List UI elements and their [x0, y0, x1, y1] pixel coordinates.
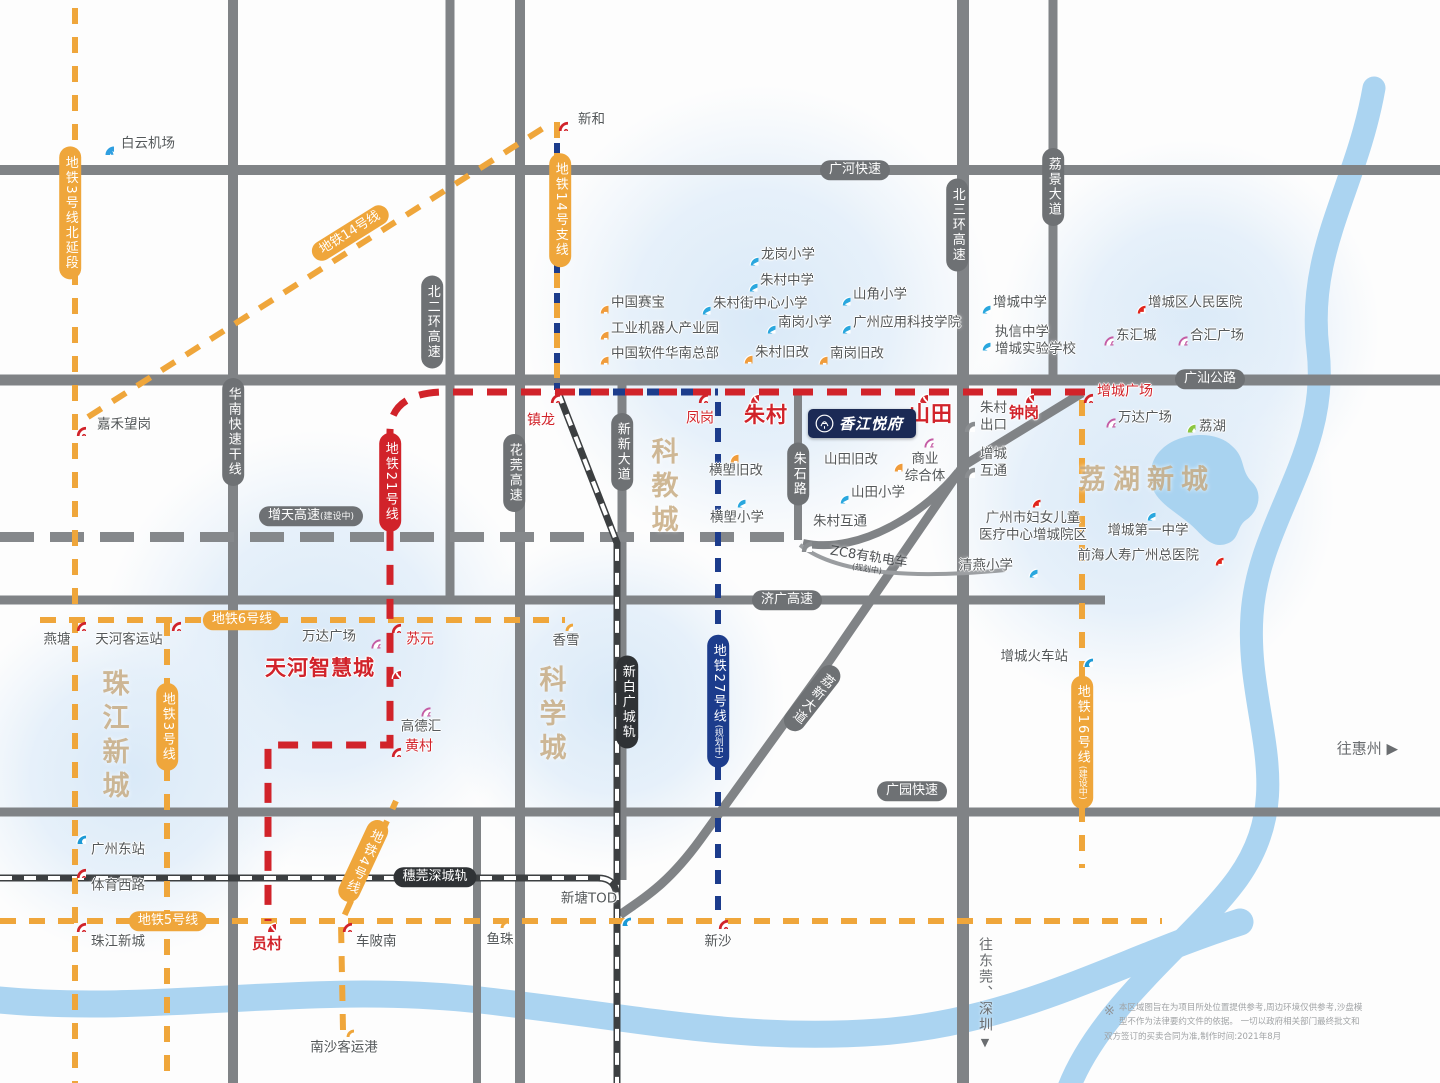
station-label: 增城广场 — [1097, 383, 1153, 401]
junction-label: 朱村互通 — [813, 514, 867, 531]
poi-label: 商业 综合体 — [905, 451, 946, 485]
poi-label: 增城区人民医院 — [1148, 295, 1243, 312]
industry-icon — [588, 319, 609, 340]
poi-label: 横塱小学 — [710, 510, 764, 527]
disclaimer-mark: ※ — [1104, 1001, 1115, 1023]
metro-station-icon — [64, 609, 86, 631]
metro-line-label-text: 地铁3号线北延段 — [63, 155, 78, 270]
metro-line-label-text: 地铁3号线 — [160, 692, 175, 762]
rail-station-icon — [1071, 645, 1093, 667]
metro-line-label: 地铁27号线(规划中) — [707, 635, 729, 768]
mall-icon — [1167, 325, 1188, 346]
school-icon — [725, 487, 746, 508]
mall-icon — [360, 628, 381, 649]
disclaimer: ※ 本区域图旨在为项目所处位置提供参考,周边环境仅供参考,沙盘模型不作为法律要约… — [1104, 1001, 1366, 1044]
poi-school — [738, 245, 759, 266]
station-xfer — [379, 657, 401, 679]
road-label-sub: (建设中) — [320, 512, 354, 522]
poi-school — [830, 313, 851, 334]
road-label-text: 新新大道 — [615, 422, 630, 482]
poi-label: 增城第一中学 — [1108, 523, 1189, 540]
poi-label: 朱村旧改 — [755, 345, 809, 362]
school-icon — [690, 294, 711, 315]
road-label: 穗莞深城轨 — [393, 867, 476, 887]
poi-school — [690, 294, 711, 315]
poi-hospital — [1125, 293, 1146, 314]
road-label: 新新大道 — [611, 413, 633, 491]
open-station-icon — [332, 1015, 354, 1037]
station-metro — [706, 907, 728, 929]
park-icon — [1175, 412, 1196, 433]
station-open — [332, 1015, 354, 1037]
poi-school — [970, 293, 991, 314]
road-label: 广园快速 — [877, 781, 947, 801]
mall-icon — [1093, 325, 1114, 346]
junction-icon — [951, 408, 975, 432]
metro-line-label-sub: (规划中) — [713, 724, 723, 758]
poi-hospital — [1203, 545, 1224, 566]
poi-label: 南岗小学 — [778, 315, 832, 332]
station-label: 香雪 — [553, 633, 580, 650]
road-label-text: 朱石路 — [791, 452, 806, 497]
school-icon — [828, 483, 849, 504]
station-metro — [686, 381, 708, 403]
industry-icon — [807, 344, 828, 365]
station-label: 南沙客运港 — [310, 1040, 378, 1057]
rail-station-icon — [64, 822, 86, 844]
hospital-icon — [1020, 487, 1041, 508]
road-label-text: 华南快速干线 — [226, 387, 241, 477]
road-label-text: 广汕公路 — [1184, 371, 1236, 386]
poi-label: 龙岗小学 — [761, 247, 815, 264]
poi-park — [1175, 412, 1196, 433]
road-label-text: 穗莞深城轨 — [402, 869, 467, 884]
junction — [951, 454, 975, 478]
poi-label: 执信中学 增城实验学校 — [995, 324, 1076, 358]
xfer-station-icon — [1012, 381, 1034, 403]
junction-label: 朱村 出口 — [980, 400, 1007, 434]
poi-label: 山角小学 — [853, 287, 907, 304]
xfer-station-icon — [254, 910, 276, 932]
poi-label: 合汇广场 — [1190, 328, 1244, 345]
junction-label: 增城 互通 — [980, 446, 1007, 480]
poi-industry — [732, 343, 753, 364]
metro-line-label: 地铁3号线 — [156, 683, 178, 771]
station-label: 镇龙 — [527, 412, 555, 430]
school-icon — [970, 293, 991, 314]
metro-line-label-text: 地铁6号线 — [212, 612, 272, 627]
station-xfer — [254, 910, 276, 932]
station-rail — [64, 822, 86, 844]
poi-school — [970, 330, 991, 351]
school-icon — [830, 285, 851, 306]
road-label: 花莞高速 — [503, 434, 525, 512]
station-label: 白云机场 — [121, 136, 175, 153]
landmark-zone: 珠江新城 — [94, 669, 133, 805]
mall-icon — [410, 696, 431, 717]
poi-school — [828, 483, 849, 504]
station-metro — [379, 611, 401, 633]
hospital-icon — [1203, 545, 1224, 566]
poi-mall — [410, 696, 431, 717]
metro-station-icon — [64, 414, 86, 436]
station-label: 天河客运站 — [95, 632, 163, 649]
station-metro — [159, 609, 181, 631]
road-label-text: 广园快速 — [886, 783, 938, 798]
poi-label: 增城中学 — [993, 295, 1047, 312]
metro-line-label-text: 地铁21号线 — [383, 442, 398, 523]
city-glow-blobs — [0, 85, 1380, 955]
poi-industry — [882, 451, 903, 472]
school-icon — [830, 313, 851, 334]
station-metro — [379, 735, 401, 757]
station-xfer — [737, 381, 759, 403]
poi-label: 工业机器人产业园 — [611, 321, 719, 338]
junction-icon — [951, 454, 975, 478]
metro-line-label-text: 地铁27号线 — [711, 644, 726, 725]
poi-school — [1135, 500, 1156, 521]
poi-label: 清燕小学 — [959, 558, 1013, 575]
station-label: 鱼珠 — [487, 932, 514, 949]
poi-label: 荔湖 — [1199, 419, 1226, 436]
poi-mall — [1093, 325, 1114, 346]
poi-mall — [1167, 325, 1188, 346]
school-icon — [737, 271, 758, 292]
road-label-text: 花莞高速 — [507, 443, 522, 503]
industry-icon — [588, 293, 609, 314]
poi-label: 广州市妇女儿童 医疗中心增城院区 — [979, 510, 1087, 544]
road-label: 济广高速 — [752, 590, 822, 610]
poi-school — [830, 285, 851, 306]
metro-line-label-text: 地铁14号支线 — [553, 162, 568, 258]
station-metro — [1071, 381, 1093, 403]
station-label: 凤岗 — [686, 410, 714, 428]
metro-station-icon — [64, 910, 86, 932]
station-label: 员村 — [252, 935, 282, 954]
road-label: 增天高速(建设中) — [259, 506, 363, 526]
junction-icon — [788, 528, 812, 552]
mall-icon — [1095, 407, 1116, 428]
metro-line-label-text: 地铁5号线 — [138, 913, 198, 928]
open-station-icon — [486, 906, 508, 928]
station-open — [486, 906, 508, 928]
poi-mall — [360, 628, 381, 649]
road-label: 北三环高速 — [946, 179, 968, 272]
xfer-station-icon — [737, 381, 759, 403]
station-label: 新塘TOD — [561, 891, 617, 908]
station-label: 体育西路 — [91, 878, 145, 895]
school-icon — [970, 330, 991, 351]
metro-station-icon — [64, 856, 86, 878]
metro-line-label: 地铁21号线 — [379, 433, 401, 532]
project-logo: 香江悦府 — [808, 409, 916, 438]
station-label: 朱村 — [744, 402, 788, 428]
metro-station-icon — [159, 609, 181, 631]
road-label: 朱石路 — [787, 443, 809, 506]
industry-icon — [718, 442, 739, 463]
poi-school — [1017, 557, 1038, 578]
plane-station-icon — [92, 133, 114, 155]
station-plane — [92, 133, 114, 155]
road-label: 北二环高速 — [421, 276, 443, 369]
poi-school — [725, 487, 746, 508]
poi-label: 山田小学 — [851, 485, 905, 502]
project-emblem-icon — [814, 413, 835, 434]
poi-label: 万达广场 — [1118, 410, 1172, 427]
station-rail — [1071, 645, 1093, 667]
location-map: ✈ — [0, 0, 1440, 1083]
metro-line-label: 地铁14号支线 — [549, 153, 571, 267]
metro-station-icon — [686, 381, 708, 403]
poi-label: 高德汇 — [401, 719, 442, 736]
direction-dongguan-arrow: ▼ — [981, 1036, 989, 1049]
industry-icon — [882, 451, 903, 472]
road-label-text: 北二环高速 — [425, 285, 440, 360]
poi-hospital — [1020, 487, 1041, 508]
open-station-icon — [551, 609, 573, 631]
road-label-text: 北三环高速 — [950, 188, 965, 263]
station-metro — [546, 109, 568, 131]
xfer-station-icon — [906, 381, 928, 403]
landmark-zone: 科学城 — [531, 665, 570, 767]
station-metro — [64, 414, 86, 436]
school-icon — [755, 313, 776, 334]
station-label: 苏元 — [406, 631, 434, 649]
poi-industry — [588, 319, 609, 340]
metro-station-icon — [379, 735, 401, 757]
junction — [788, 528, 812, 552]
road-label: 华南快速干线 — [222, 378, 244, 486]
road-label-text: 新白广城轨 — [620, 665, 635, 740]
poi-mall — [1095, 407, 1116, 428]
station-label: 黄村 — [405, 738, 433, 756]
station-label: 钟岗 — [1009, 404, 1039, 423]
project-name: 香江悦府 — [839, 413, 903, 434]
road-label: 新白广城轨 — [616, 656, 638, 749]
station-metro — [64, 910, 86, 932]
road-label-text: 增天高速 — [268, 508, 320, 523]
road-label: 广河快速 — [820, 160, 890, 180]
junction — [951, 408, 975, 432]
metro-line-label: 地铁3号线北延段 — [59, 146, 81, 279]
road-label-text: 荔景大道 — [1046, 157, 1061, 217]
school-icon — [1017, 557, 1038, 578]
poi-label: 中国软件华南总部 — [611, 346, 719, 363]
poi-label: 朱村中学 — [760, 273, 814, 290]
metro-line-label: 地铁16号线(建设中) — [1071, 676, 1093, 809]
station-metro — [64, 856, 86, 878]
metro-station-icon — [706, 907, 728, 929]
poi-school — [755, 313, 776, 334]
hospital-icon — [1125, 293, 1146, 314]
station-label: 新沙 — [705, 934, 732, 951]
poi-school — [737, 271, 758, 292]
poi-label: 广州应用科技学院 — [853, 315, 961, 332]
road-label: 广汕公路 — [1175, 369, 1245, 389]
poi-industry — [807, 344, 828, 365]
metro-station-icon — [379, 611, 401, 633]
direction-huizhou: 往惠州 ▶ — [1337, 738, 1398, 759]
station-open — [551, 609, 573, 631]
station-label: 珠江新城 — [91, 934, 145, 951]
station-label: 燕塘 — [44, 632, 71, 649]
poi-label: 万达广场 — [302, 629, 356, 646]
metro-line-label-sub: (建设中) — [1077, 765, 1087, 799]
landmark-zone: 荔湖新城 — [1079, 458, 1215, 497]
poi-label: 横塱旧改 — [709, 463, 763, 480]
metro-station-icon — [330, 910, 352, 932]
poi-label: 山田旧改 — [824, 452, 878, 469]
industry-icon — [588, 344, 609, 365]
poi-label: 中国赛宝 — [611, 295, 665, 312]
station-label: 广州东站 — [91, 842, 145, 859]
station-xfer — [1012, 381, 1034, 403]
poi-label: 朱村街中心小学 — [713, 296, 808, 313]
industry-icon — [732, 343, 753, 364]
metro-station-icon — [1071, 381, 1093, 403]
road-label: 荔景大道 — [1042, 148, 1064, 226]
poi-label: 南岗旧改 — [830, 346, 884, 363]
station-label: 天河智慧城 — [265, 655, 375, 681]
school-icon — [1135, 500, 1156, 521]
metro-line-label-text: 地铁16号线 — [1075, 685, 1090, 766]
station-metro — [64, 609, 86, 631]
station-label: 增城火车站 — [1001, 649, 1069, 666]
school-icon — [738, 245, 759, 266]
metro-station-icon — [546, 109, 568, 131]
metro-line-label: 地铁5号线 — [129, 911, 207, 931]
direction-dongguan: 往东莞、深圳 — [975, 937, 995, 1033]
station-label: 嘉禾望岗 — [97, 417, 151, 434]
station-xfer — [906, 381, 928, 403]
poi-industry — [588, 344, 609, 365]
poi-label: 东汇城 — [1116, 328, 1157, 345]
station-metro — [330, 910, 352, 932]
landmark-zone: 科教城 — [643, 437, 682, 539]
xfer-station-icon — [379, 657, 401, 679]
station-label: 新和 — [578, 112, 605, 129]
metro-line-label: 地铁6号线 — [203, 610, 281, 630]
poi-industry — [588, 293, 609, 314]
poi-label: 前海人寿广州总医院 — [1078, 548, 1200, 565]
road-label-text: 广河快速 — [829, 162, 881, 177]
station-metro — [538, 381, 560, 403]
metro-station-icon — [538, 381, 560, 403]
road-label-text: 济广高速 — [761, 592, 813, 607]
station-label: 车陂南 — [356, 934, 397, 951]
poi-industry — [718, 442, 739, 463]
